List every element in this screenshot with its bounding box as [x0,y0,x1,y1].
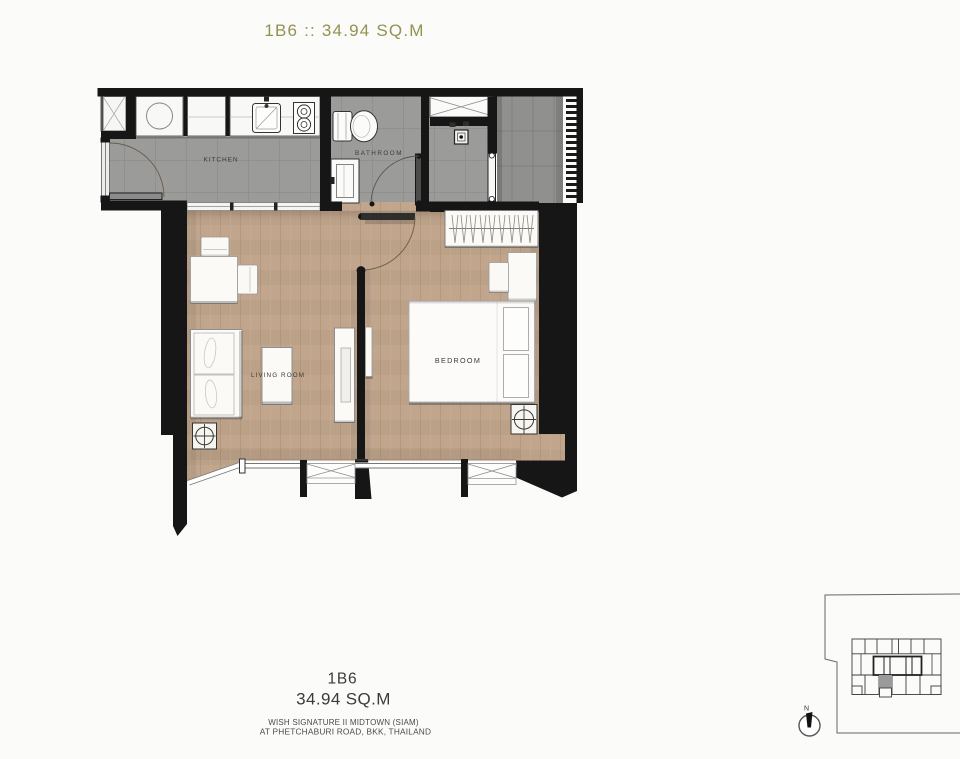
svg-text:BEDROOM: BEDROOM [435,356,481,365]
svg-text:BATHROOM: BATHROOM [355,150,403,157]
svg-text:LIVING ROOM: LIVING ROOM [251,372,305,379]
svg-text:N: N [804,706,809,713]
svg-text:1B6 :: 34.94 SQ.M: 1B6 :: 34.94 SQ.M [264,21,424,40]
svg-text:1B6: 1B6 [328,671,358,688]
svg-text:AT PHETCHABURI ROAD, BKK, THAI: AT PHETCHABURI ROAD, BKK, THAILAND [260,727,431,737]
svg-text:34.94 SQ.M: 34.94 SQ.M [296,690,391,709]
svg-text:KITCHEN: KITCHEN [204,157,239,164]
